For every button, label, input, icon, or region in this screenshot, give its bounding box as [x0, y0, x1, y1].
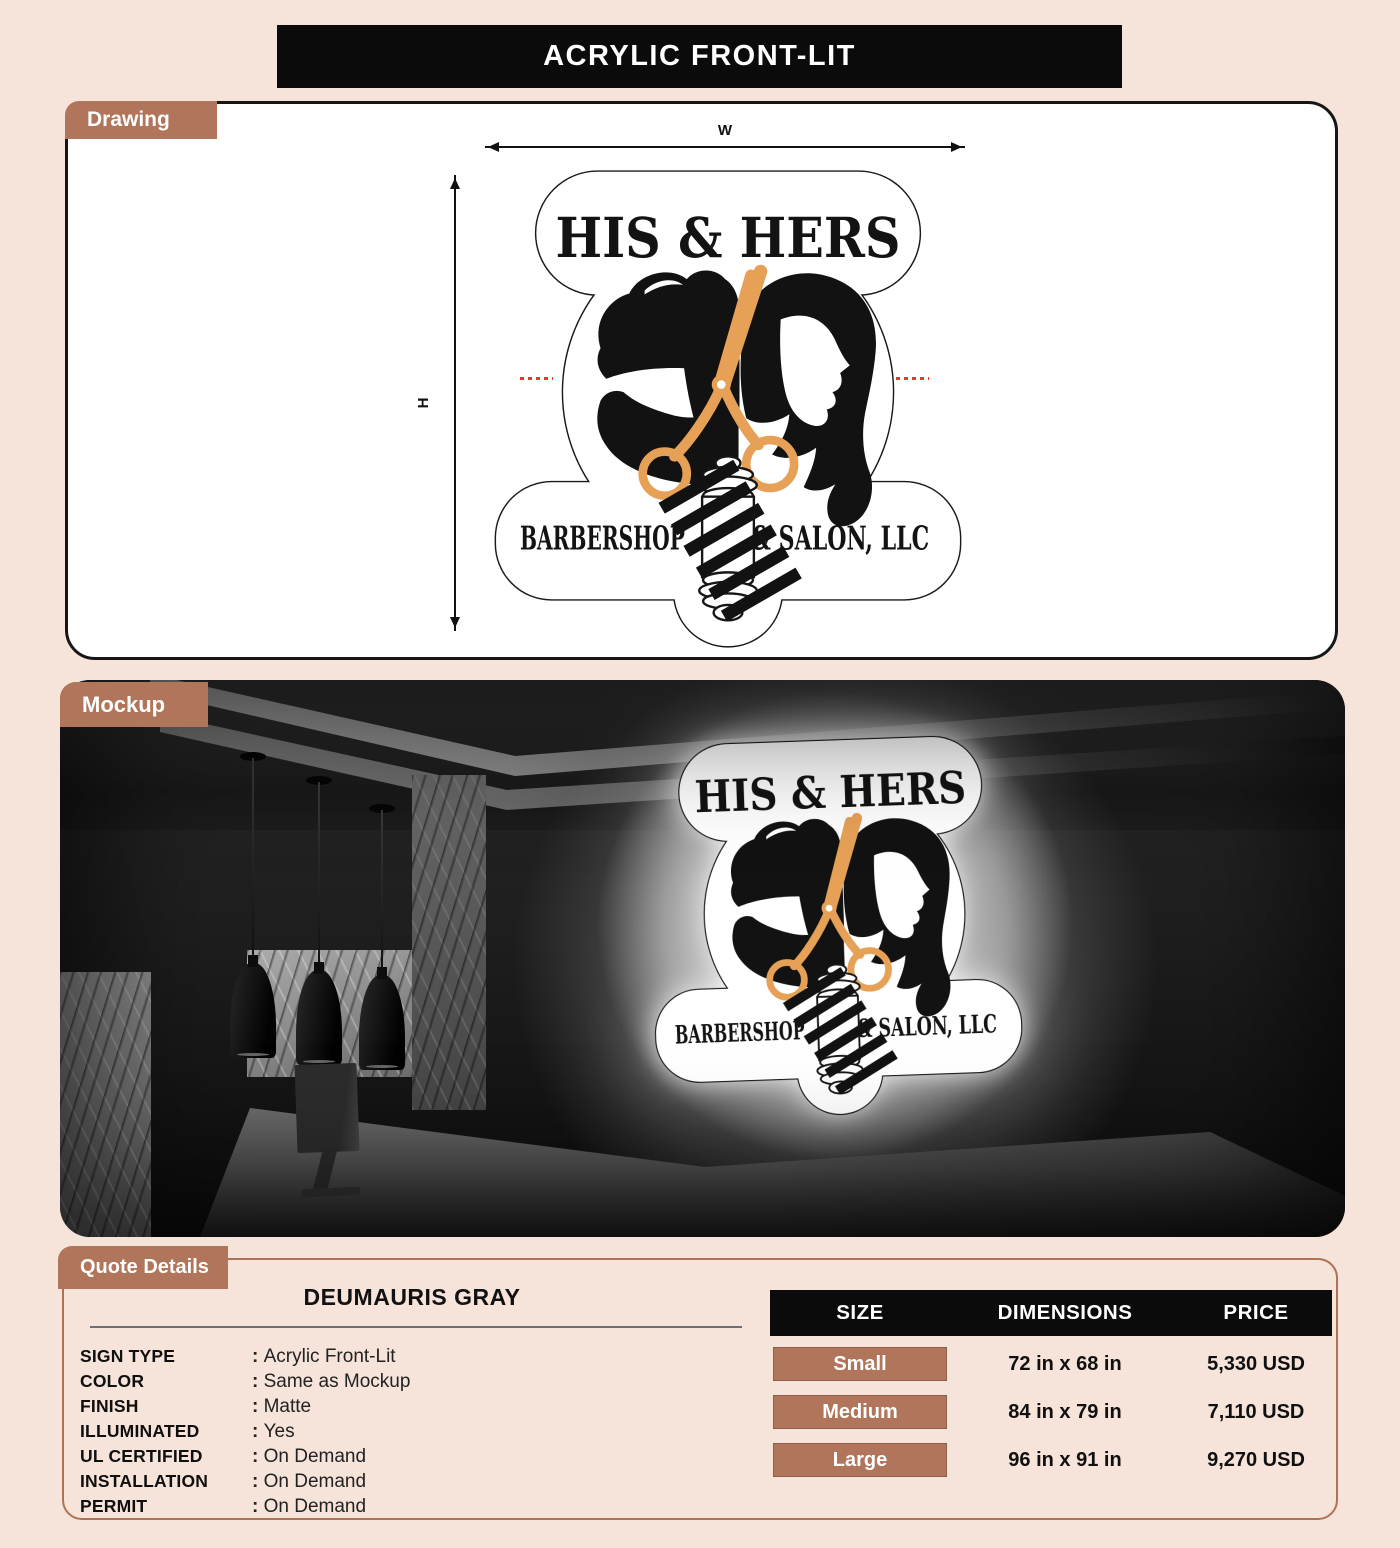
spec-value: Same as Mockup: [252, 1369, 756, 1394]
spec-label: COLOR: [80, 1369, 252, 1394]
column-header-dimensions: DIMENSIONS: [950, 1301, 1180, 1325]
spec-label: UL CERTIFIED: [80, 1444, 252, 1469]
column-header-size: SIZE: [770, 1301, 950, 1325]
spec-row: FINISH Matte: [80, 1394, 756, 1419]
quote-details-panel: DEUMAURIS GRAY SIGN TYPE Acrylic Front-L…: [62, 1258, 1338, 1520]
height-dimension: H: [434, 175, 460, 631]
dimensions-cell: 96 in x 91 in: [950, 1443, 1180, 1477]
spec-label: INSTALLATION: [80, 1469, 252, 1494]
spec-label: SIGN TYPE: [80, 1344, 252, 1369]
spec-row: ILLUMINATED Yes: [80, 1419, 756, 1444]
drawing-panel: W H: [65, 101, 1338, 660]
dimensions-cell: 84 in x 79 in: [950, 1395, 1180, 1429]
title-banner: ACRYLIC FRONT-LIT: [277, 25, 1122, 88]
price-cell: 7,110 USD: [1180, 1395, 1332, 1429]
divider: [90, 1326, 742, 1328]
size-button-small[interactable]: Small: [773, 1347, 947, 1381]
spec-label: PERMIT: [80, 1494, 252, 1519]
table-row: Small 72 in x 68 in 5,330 USD: [770, 1347, 1332, 1381]
spec-row: INSTALLATION On Demand: [80, 1469, 756, 1494]
spec-row: COLOR Same as Mockup: [80, 1369, 756, 1394]
table-row: Large 96 in x 91 in 9,270 USD: [770, 1443, 1332, 1477]
spec-row: PERMIT On Demand: [80, 1494, 756, 1519]
table-row: Medium 84 in x 79 in 7,110 USD: [770, 1395, 1332, 1429]
width-dimension: W: [485, 122, 965, 148]
spec-row: UL CERTIFIED On Demand: [80, 1444, 756, 1469]
quote-sheet: { "page": {"title": "ACRYLIC FRONT-LIT"}…: [0, 0, 1400, 1548]
size-button-medium[interactable]: Medium: [773, 1395, 947, 1429]
mockup-sign: [643, 730, 1026, 1124]
quote-tab-label: Quote Details: [80, 1256, 209, 1279]
spec-value: Acrylic Front-Lit: [252, 1344, 756, 1369]
page-title: ACRYLIC FRONT-LIT: [543, 40, 856, 73]
pricing-table-body: Small 72 in x 68 in 5,330 USD Medium 84 …: [770, 1347, 1332, 1477]
quote-details-tab: Quote Details: [58, 1246, 228, 1289]
price-cell: 5,330 USD: [1180, 1347, 1332, 1381]
sign-drawing: [493, 166, 963, 650]
height-label: H: [415, 398, 432, 409]
size-button-large[interactable]: Large: [773, 1443, 947, 1477]
marble-wall-panel-left: [60, 972, 151, 1237]
width-arrow-icon: [485, 146, 965, 148]
mockup-panel: [60, 680, 1345, 1237]
spec-value: On Demand: [252, 1469, 756, 1494]
mockup-tab-label: Mockup: [82, 692, 165, 718]
drawing-tab-label: Drawing: [87, 108, 170, 132]
sign-artwork: [493, 166, 963, 650]
pricing-table: SIZE DIMENSIONS PRICE Small 72 in x 68 i…: [770, 1290, 1332, 1477]
spec-value: Matte: [252, 1394, 756, 1419]
height-arrow-icon: [454, 175, 456, 631]
spec-label: FINISH: [80, 1394, 252, 1419]
spec-value: On Demand: [252, 1494, 756, 1519]
dimensions-cell: 72 in x 68 in: [950, 1347, 1180, 1381]
drawing-tab: Drawing: [65, 101, 217, 139]
price-cell: 9,270 USD: [1180, 1443, 1332, 1477]
mockup-tab: Mockup: [60, 682, 208, 727]
lamp-cord: [252, 758, 254, 963]
lamp-cord: [318, 782, 320, 970]
spec-value: Yes: [252, 1419, 756, 1444]
counter-monitor: [294, 1063, 359, 1153]
spec-label: ILLUMINATED: [80, 1419, 252, 1444]
column-header-price: PRICE: [1180, 1301, 1332, 1325]
pricing-table-header: SIZE DIMENSIONS PRICE: [770, 1290, 1332, 1336]
spec-value: On Demand: [252, 1444, 756, 1469]
sign-artwork: [643, 730, 1026, 1124]
spec-list: SIGN TYPE Acrylic Front-Lit COLOR Same a…: [80, 1344, 756, 1519]
lamp-cord: [381, 810, 383, 975]
width-label: W: [485, 122, 965, 139]
spec-row: SIGN TYPE Acrylic Front-Lit: [80, 1344, 756, 1369]
